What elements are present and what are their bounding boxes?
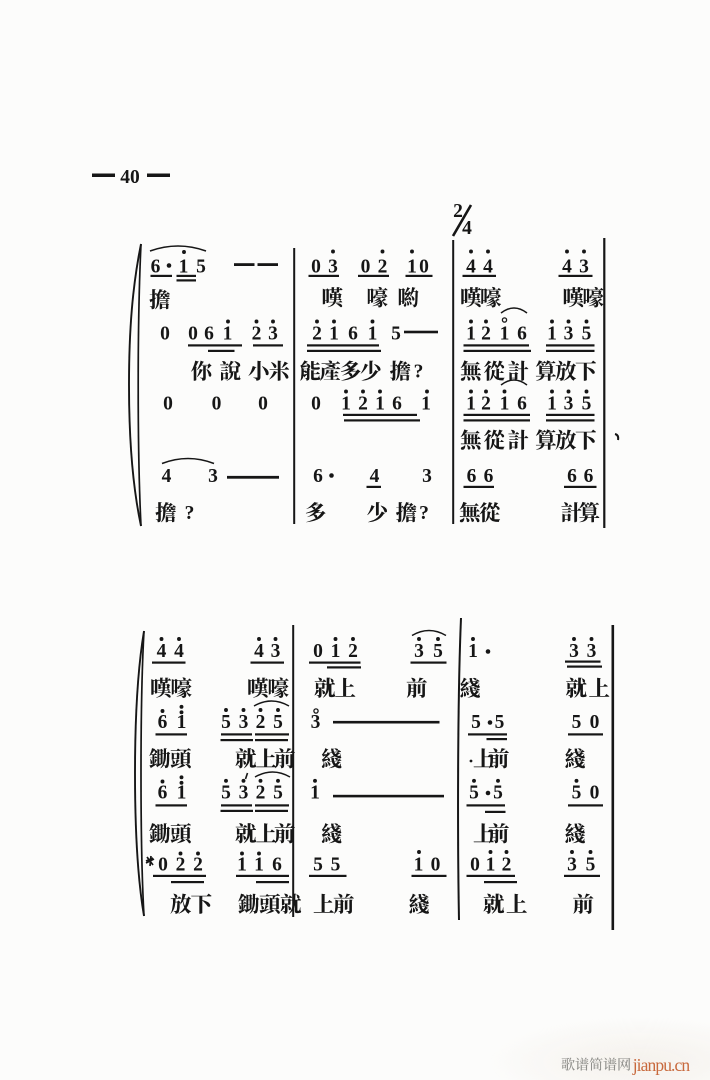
svg-text:4: 4: [483, 256, 493, 277]
svg-text:6: 6: [484, 466, 494, 487]
svg-text:5: 5: [221, 712, 231, 733]
svg-text:5: 5: [586, 855, 596, 876]
svg-text:6: 6: [567, 466, 577, 487]
svg-text:3: 3: [422, 466, 432, 487]
svg-text:6: 6: [272, 855, 282, 876]
svg-text:3: 3: [579, 256, 589, 277]
svg-text:6: 6: [392, 394, 402, 415]
svg-text:5: 5: [273, 712, 283, 733]
svg-text:5: 5: [495, 712, 505, 733]
svg-text:1: 1: [310, 783, 320, 804]
svg-text:0: 0: [313, 641, 323, 662]
svg-text:3: 3: [271, 641, 281, 662]
svg-text:3: 3: [564, 324, 574, 345]
svg-text:0: 0: [311, 394, 321, 415]
svg-text:1: 1: [375, 394, 385, 415]
svg-text:5: 5: [221, 783, 231, 804]
svg-text:6: 6: [158, 783, 168, 804]
svg-text:0: 0: [258, 394, 268, 415]
svg-text:6: 6: [517, 324, 527, 345]
svg-text:1: 1: [468, 641, 478, 662]
svg-text:6: 6: [517, 394, 527, 415]
svg-text:1: 1: [368, 324, 378, 345]
svg-text:4: 4: [254, 641, 264, 662]
svg-text:3: 3: [587, 641, 597, 662]
svg-text:4: 4: [466, 256, 476, 277]
svg-text:4: 4: [174, 641, 184, 662]
svg-text:2: 2: [312, 324, 322, 345]
svg-text:3: 3: [564, 394, 574, 415]
svg-text:1: 1: [331, 641, 341, 662]
svg-text:0: 0: [163, 394, 173, 415]
svg-text:6: 6: [584, 466, 594, 487]
svg-text:1: 1: [414, 855, 424, 876]
svg-text:1: 1: [223, 324, 233, 345]
svg-text:0: 0: [212, 394, 222, 415]
svg-text:1: 1: [407, 256, 417, 277]
svg-text:?: ?: [414, 362, 424, 383]
svg-text:5: 5: [582, 394, 592, 415]
svg-text:3: 3: [208, 466, 218, 487]
svg-text:4: 4: [370, 466, 380, 487]
svg-text:1: 1: [329, 324, 339, 345]
svg-text:5: 5: [471, 712, 481, 733]
svg-text:0: 0: [590, 712, 600, 733]
svg-text:2: 2: [481, 394, 491, 415]
svg-text:0: 0: [158, 855, 168, 876]
svg-text:4: 4: [157, 641, 167, 662]
svg-text:3: 3: [239, 712, 249, 733]
svg-text:2: 2: [481, 324, 491, 345]
svg-text:jianpu.cn: jianpu.cn: [632, 1055, 691, 1075]
svg-text:0: 0: [419, 256, 429, 277]
svg-text:2: 2: [256, 783, 266, 804]
svg-text:3: 3: [569, 641, 579, 662]
svg-text:1: 1: [237, 855, 247, 876]
svg-text:5: 5: [572, 712, 582, 733]
svg-text:6: 6: [467, 466, 477, 487]
svg-text:4: 4: [562, 256, 572, 277]
svg-text:5: 5: [572, 783, 582, 804]
svg-text:5: 5: [273, 783, 283, 804]
svg-text:4: 4: [162, 466, 172, 487]
svg-text:3: 3: [328, 256, 338, 277]
svg-text:3: 3: [567, 855, 577, 876]
svg-text:1: 1: [177, 712, 187, 733]
svg-text:4: 4: [462, 218, 472, 239]
svg-text:0: 0: [590, 783, 600, 804]
svg-text:1: 1: [500, 394, 510, 415]
svg-text:2: 2: [502, 855, 512, 876]
svg-text:5: 5: [313, 855, 323, 876]
svg-text:1: 1: [341, 394, 351, 415]
svg-text:0: 0: [188, 324, 198, 345]
svg-text:2: 2: [378, 256, 388, 277]
svg-text:1: 1: [547, 324, 557, 345]
svg-text:1: 1: [547, 394, 557, 415]
svg-text:3: 3: [239, 783, 249, 804]
svg-text:5: 5: [331, 855, 341, 876]
svg-text:2: 2: [193, 855, 203, 876]
svg-text:0: 0: [470, 855, 480, 876]
svg-text:6: 6: [348, 324, 358, 345]
svg-text:5: 5: [391, 324, 401, 345]
svg-text:3: 3: [268, 324, 278, 345]
svg-text:1: 1: [486, 855, 496, 876]
svg-text:0: 0: [160, 324, 170, 345]
svg-text:1: 1: [466, 324, 476, 345]
svg-text:1: 1: [421, 394, 431, 415]
svg-text:6: 6: [204, 324, 214, 345]
svg-text:1: 1: [254, 855, 264, 876]
svg-text:2: 2: [348, 641, 358, 662]
svg-text:40: 40: [120, 167, 140, 188]
svg-text:5: 5: [196, 256, 206, 277]
svg-text:1: 1: [500, 324, 510, 345]
svg-text:3: 3: [414, 641, 424, 662]
svg-text:5: 5: [433, 641, 443, 662]
svg-text:6: 6: [313, 466, 323, 487]
svg-text:?: ?: [185, 503, 195, 524]
svg-text:0: 0: [311, 256, 321, 277]
svg-text:2: 2: [358, 394, 368, 415]
svg-text:0: 0: [431, 855, 441, 876]
svg-text:5: 5: [469, 783, 479, 804]
svg-text:6: 6: [151, 256, 161, 277]
svg-text:6: 6: [158, 712, 168, 733]
svg-text:3: 3: [311, 712, 321, 733]
svg-text:5: 5: [582, 324, 592, 345]
svg-text:?: ?: [419, 503, 429, 524]
svg-text:0: 0: [361, 256, 371, 277]
svg-text:2: 2: [256, 712, 266, 733]
svg-text:2: 2: [252, 324, 262, 345]
svg-text:1: 1: [466, 394, 476, 415]
svg-text:1: 1: [179, 256, 189, 277]
svg-text:1: 1: [177, 783, 187, 804]
svg-text:2: 2: [176, 855, 186, 876]
svg-text:5: 5: [493, 783, 503, 804]
